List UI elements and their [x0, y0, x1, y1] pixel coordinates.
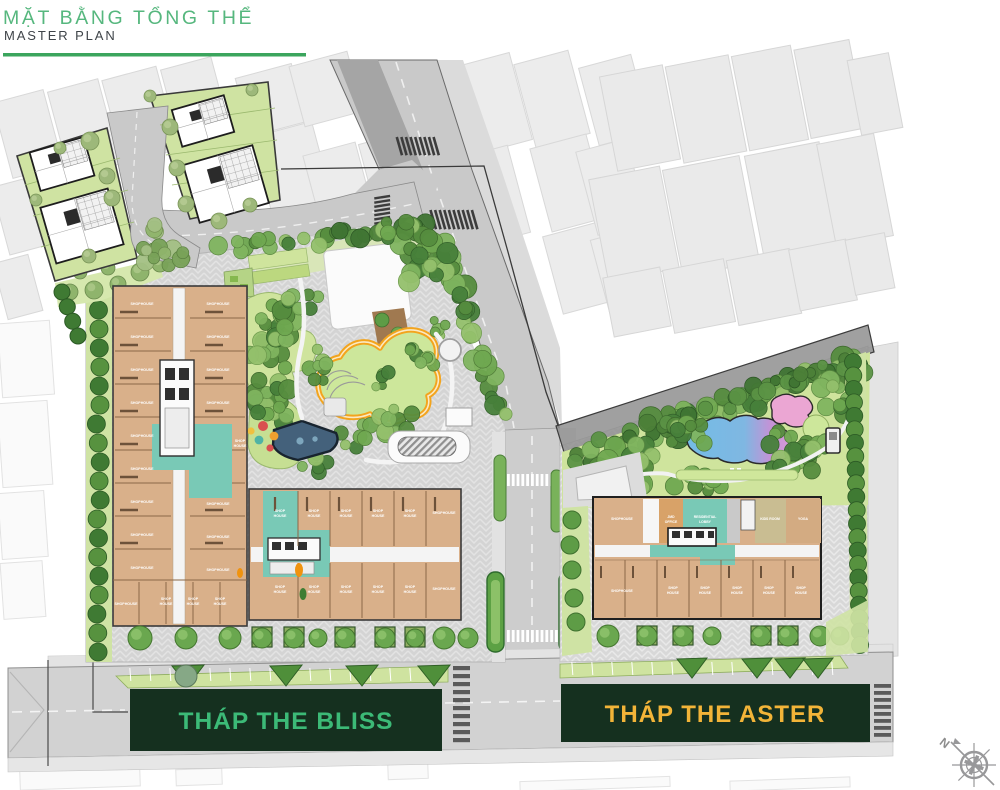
svg-text:SHOPHOUSE: SHOPHOUSE	[131, 467, 155, 471]
svg-text:SHOPHOUSE: SHOPHOUSE	[433, 587, 457, 591]
svg-text:SHOPHOUSE: SHOPHOUSE	[131, 566, 155, 570]
svg-text:HOUSE: HOUSE	[404, 590, 417, 594]
svg-text:HOUSE: HOUSE	[308, 514, 321, 518]
svg-text:THÁP THE BLISS: THÁP THE BLISS	[178, 707, 393, 735]
svg-text:SHOPHOUSE: SHOPHOUSE	[207, 302, 231, 306]
svg-text:HOUSE: HOUSE	[699, 591, 712, 595]
svg-text:SHOPHOUSE: SHOPHOUSE	[611, 589, 633, 593]
svg-text:HOUSE: HOUSE	[340, 514, 353, 518]
svg-text:RESIDENTIAL: RESIDENTIAL	[694, 515, 717, 519]
svg-text:SHOP: SHOP	[341, 585, 352, 589]
svg-text:OFFICE: OFFICE	[665, 520, 678, 524]
svg-text:SHOP: SHOP	[235, 439, 246, 443]
svg-text:JMD: JMD	[667, 515, 675, 519]
svg-text:MẶT BẰNG TỔNG THỂ: MẶT BẰNG TỔNG THỂ	[3, 5, 254, 29]
svg-text:SHOPHOUSE: SHOPHOUSE	[131, 302, 155, 306]
svg-text:SHOP: SHOP	[732, 586, 742, 590]
svg-text:HOUSE: HOUSE	[274, 590, 287, 594]
svg-text:SHOP: SHOP	[764, 586, 774, 590]
svg-text:HOUSE: HOUSE	[234, 444, 247, 448]
svg-text:SHOP: SHOP	[700, 586, 710, 590]
svg-text:HOUSE: HOUSE	[308, 590, 321, 594]
svg-text:HOUSE: HOUSE	[731, 591, 744, 595]
svg-text:SHOPHOUSE: SHOPHOUSE	[131, 434, 155, 438]
svg-text:SHOPHOUSE: SHOPHOUSE	[207, 401, 231, 405]
svg-text:SHOP: SHOP	[373, 509, 384, 513]
svg-text:SHOPHOUSE: SHOPHOUSE	[207, 502, 231, 506]
svg-text:SHOP: SHOP	[341, 509, 352, 513]
svg-text:THÁP THE ASTER: THÁP THE ASTER	[605, 700, 826, 728]
svg-text:SHOPHOUSE: SHOPHOUSE	[131, 500, 155, 504]
svg-text:SHOPHOUSE: SHOPHOUSE	[131, 533, 155, 537]
svg-text:SHOPHOUSE: SHOPHOUSE	[131, 368, 155, 372]
svg-text:HOUSE: HOUSE	[372, 590, 385, 594]
svg-text:SHOPHOUSE: SHOPHOUSE	[131, 335, 155, 339]
svg-text:SHOP: SHOP	[215, 597, 226, 601]
svg-text:SHOP: SHOP	[309, 585, 320, 589]
svg-text:SHOP: SHOP	[275, 585, 286, 589]
svg-text:HOUSE: HOUSE	[214, 602, 227, 606]
svg-text:HOUSE: HOUSE	[160, 602, 173, 606]
svg-text:YOGA: YOGA	[798, 517, 809, 521]
svg-text:SHOP: SHOP	[309, 509, 320, 513]
svg-text:SHOP: SHOP	[275, 509, 286, 513]
svg-text:HOUSE: HOUSE	[667, 591, 680, 595]
svg-text:SHOPHOUSE: SHOPHOUSE	[207, 368, 231, 372]
svg-text:HOUSE: HOUSE	[404, 514, 417, 518]
svg-text:SHOP: SHOP	[188, 597, 199, 601]
svg-text:HOUSE: HOUSE	[372, 514, 385, 518]
svg-text:HOUSE: HOUSE	[795, 591, 808, 595]
svg-text:SHOPHOUSE: SHOPHOUSE	[115, 602, 139, 606]
svg-text:HOUSE: HOUSE	[187, 602, 200, 606]
svg-text:SHOP: SHOP	[668, 586, 678, 590]
svg-text:SHOPHOUSE: SHOPHOUSE	[611, 517, 633, 521]
svg-text:SHOP: SHOP	[161, 597, 172, 601]
svg-text:SHOP: SHOP	[405, 585, 416, 589]
svg-text:SHOP: SHOP	[405, 509, 416, 513]
svg-text:SHOP: SHOP	[796, 586, 806, 590]
svg-text:LOBBY: LOBBY	[699, 520, 712, 524]
svg-text:SHOPHOUSE: SHOPHOUSE	[433, 511, 457, 515]
svg-text:SHOPHOUSE: SHOPHOUSE	[207, 535, 231, 539]
svg-text:SHOPHOUSE: SHOPHOUSE	[131, 401, 155, 405]
svg-text:HOUSE: HOUSE	[340, 590, 353, 594]
svg-text:HOUSE: HOUSE	[763, 591, 776, 595]
svg-text:KIDS ROOM: KIDS ROOM	[760, 517, 780, 521]
svg-text:SHOPHOUSE: SHOPHOUSE	[207, 335, 231, 339]
svg-text:MASTER PLAN: MASTER PLAN	[4, 28, 117, 43]
svg-text:HOUSE: HOUSE	[274, 514, 287, 518]
svg-text:SHOPHOUSE: SHOPHOUSE	[207, 568, 231, 572]
svg-text:SHOP: SHOP	[373, 585, 384, 589]
